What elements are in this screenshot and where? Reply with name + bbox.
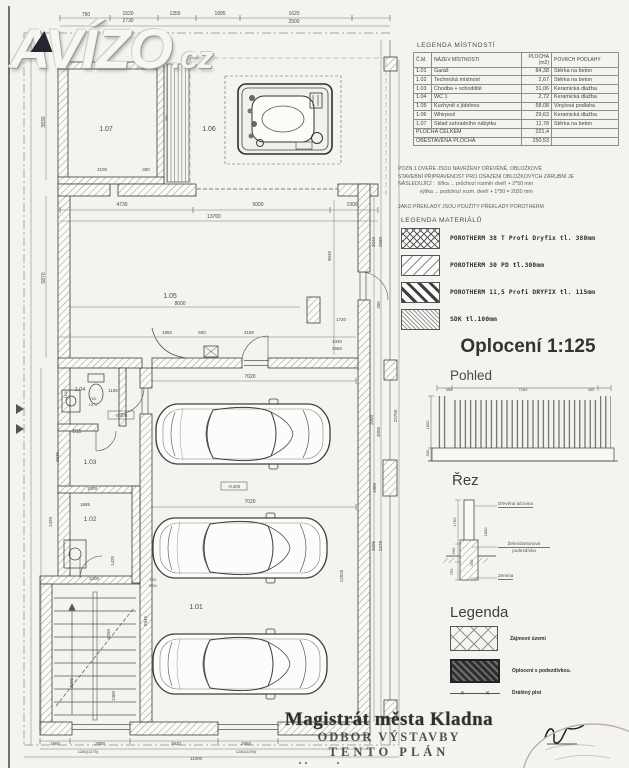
dimension-label: 500 [425,449,430,456]
construction-notes: POZN.1 DVEŘE JSOU NAVRŽENY DŘEVĚNÉ, OBLO… [398,166,626,211]
dimension-label: 3040 [371,236,376,247]
dimension-label: 3100 [97,167,108,172]
room-label: 1.02 [84,516,97,523]
car-icon [153,513,327,583]
dimension-label: 12025 [339,569,344,582]
dimension-label: 2278 [378,540,383,551]
dimension-label: 3200 [89,576,100,581]
table-row: 1.03Chodba + schodiště31,06Keramická dla… [414,85,619,94]
table-row: 1.07Sklad zahradního nábytku11,78Stěrka … [414,120,619,129]
section-note-soil: Zemina [498,573,513,580]
fence-section-label: Řez [452,472,479,489]
room-label: 1.01 [189,604,203,611]
dimension-label: 1970 [89,402,99,407]
dimension-label: 8600 [174,301,185,307]
room-label: 1.03 [84,459,97,466]
dimension-label: 1425 [110,555,115,566]
scanned-plan-page: 7501520273013551995162025004730500019001… [0,0,629,768]
material-label: POROTHERM 38 T Profi Dryfix tl. 380mm [450,235,595,242]
dimension-label: 1885 [80,502,91,507]
col-header-name: NÁZEV MÍSTNOSTI [432,53,522,68]
col-header-floor: POVRCH PODLAHY [552,53,619,68]
level-label: -0,400 [228,484,241,489]
material-item: SDK tl.100mm [401,309,629,329]
dimension-label: 2090 [69,677,74,688]
dimension-label: 1520 [122,11,133,17]
dimension-label: 1860 [50,741,61,746]
dimension-label: B15 [73,429,82,435]
legend-item-label: Zájmové území [510,636,546,642]
dimension-label: 13700 [207,214,221,220]
dimension-label: 3830 [41,116,47,127]
dimension-label: 4730 [116,202,127,208]
dimension-label: 1195 [108,388,118,393]
table-row: 1.01Garáž84,38Stěrka na beton [414,67,619,76]
dimension-label: 2560 [332,346,343,351]
dimension-label: 500 [198,330,206,335]
fence-legend-item: Zájmové území [450,626,546,651]
dimension-label: 1700 [452,517,457,527]
table-row: 1.06Whirpool29,63Keramická dlažba [414,111,619,120]
section-note-base: Železobetonová podezdívka [498,541,550,553]
dimension-label: 1800 [425,420,430,430]
dimension-label: 9040 [327,250,332,261]
dimension-label: 3820 [171,741,182,746]
staircase [54,592,136,720]
dimension-label: 1950 [162,330,173,335]
table-row: 1.02Technická místnost2,67Stěrka na beto… [414,76,619,85]
dimension-label: 1900 [372,482,377,493]
dimension-label: 450 [588,387,595,392]
room-label: 1.04 [75,387,86,393]
fence-title: Oplocení 1:125 [428,336,628,358]
section-note-slats: Dřevěná laťovina [498,501,533,508]
dimension-label: 100 [150,577,157,582]
table-row: 1.04WC 12,72Keramická dlažba [414,93,619,102]
dimension-label: 1800 [483,527,488,537]
dimension-label: 7020 [244,374,255,380]
dimension-label: 300 [469,559,474,566]
material-item: POROTHERM 30 PD tl.300mm [401,255,629,275]
dimension-label: 1360 [111,690,116,701]
dimension-label: 500 [451,547,456,554]
room-label: 1.06 [202,126,216,133]
dimension-label: 2635 [55,451,60,462]
room-table: Č.M. NÁZEV MÍSTNOSTI PLOCHA (m2) POVRCH … [413,52,619,146]
dimension-label: 750 [82,12,91,18]
dimension-label: 300 [376,301,381,309]
dimension-label: 1420 [48,516,53,527]
dimension-label: 2730 [122,18,133,24]
room-table-body: 1.01Garáž84,38Stěrka na beton1.02Technic… [414,67,619,146]
room-legend-title: LEGENDA MÍSTNOSTÍ [417,42,619,49]
dimension-label: 1280(1275) [78,749,99,754]
fence-legend-item: Oplocení s podezdívkou. [450,659,571,683]
legend-swatch-icon [450,659,500,683]
dimension-label: 2000 [369,414,374,425]
material-hatch-swatch-icon [401,282,440,303]
table-header-row: Č.M. NÁZEV MÍSTNOSTI PLOCHA (m2) POVRCH … [414,53,619,68]
dimension-label: 11000 [190,756,203,761]
dimension-label: 5000 [252,202,263,208]
dimension-label: 22750 [393,409,398,422]
dimension-label: 2800 [95,741,106,746]
dimension-label: 7150 [519,387,529,392]
legend-swatch-icon [450,626,498,651]
garage-cars [153,399,330,699]
dimension-label: 2500 [288,19,299,25]
dimension-label: 450 [446,387,453,392]
dimension-label: 1000 [87,486,98,491]
room-label: 1.07 [99,126,113,133]
level-label: -0,400 [115,413,128,418]
dimension-label: 7020 [244,499,255,505]
dimension-label: 300 [142,167,150,172]
dimension-label: 5870 [41,272,47,283]
dimension-label: 2580 [378,236,383,247]
dimension-label: 5945 [143,615,148,626]
material-item: POROTHERM 38 T Profi Dryfix tl. 380mm [401,228,629,248]
material-hatch-swatch-icon [401,309,440,330]
col-header-cm: Č.M. [414,53,432,68]
dimension-label: 1100 [63,389,68,398]
dimension-label: 750 [449,568,454,575]
dimension-label: 1900 [346,202,357,208]
dimension-label: 3005 [376,426,381,437]
fence-elevation [428,385,618,461]
table-total-row: OBESTAVĚNÁ PLOCHA250,53 [414,137,619,146]
wire-fence-line-icon: ✕✕ [450,688,500,698]
dimension-label: 2860 [241,741,252,746]
materials-list: POROTHERM 38 T Profi Dryfix tl. 380mmPOR… [401,228,629,336]
dimension-label: 3005 [371,540,376,551]
col-header-area: PLOCHA (m2) [522,53,552,68]
car-icon [153,629,327,699]
material-hatch-swatch-icon [401,255,440,276]
room-label: 1.05 [163,293,177,300]
dimension-label: 1995 [214,11,225,17]
material-label: POROTHERM 30 PD tl.300mm [450,262,544,269]
dimension-label: 3150 [244,330,255,335]
fence-section [443,500,497,580]
fence-legend-item: ✕✕Drátěný plot [450,688,541,698]
dimension-label: 1280(1290) [236,749,257,754]
dimension-label: 1720 [336,317,347,322]
dimension-label: 1355 [169,11,180,17]
fence-legend-title: Legenda [450,604,508,621]
dimension-label: 700 [90,396,97,401]
material-hatch-swatch-icon [401,228,440,249]
material-label: POROTHERM 11,5 Profi DRYFIX tl. 115mm [450,289,595,296]
material-label: SDK tl.100mm [450,316,497,323]
dimension-label: SDK [149,583,158,588]
fence-view-label: Pohled [450,368,492,383]
watermark-a-triangle [31,31,56,52]
material-item: POROTHERM 11,5 Profi DRYFIX tl. 115mm [401,282,629,302]
dimension-label: 1620 [288,11,299,17]
table-row: 1.05Kuchyně s jídelnou58,08Vinylová podl… [414,102,619,111]
table-total-row: PLOCHA CELKEM221,4 [414,128,619,137]
whirlpool-tub-icon [238,84,332,154]
dimension-label: 3250 [106,628,111,639]
materials-legend-title: LEGENDA MATERIÁLŮ [401,217,482,224]
room-legend: LEGENDA MÍSTNOSTÍ Č.M. NÁZEV MÍSTNOSTI P… [413,42,619,146]
legend-item-label: Drátěný plot [512,690,541,696]
dimension-label: 1340 [332,339,343,344]
round-stamp [523,724,629,768]
car-icon [156,399,330,469]
legend-item-label: Oplocení s podezdívkou. [512,668,571,674]
